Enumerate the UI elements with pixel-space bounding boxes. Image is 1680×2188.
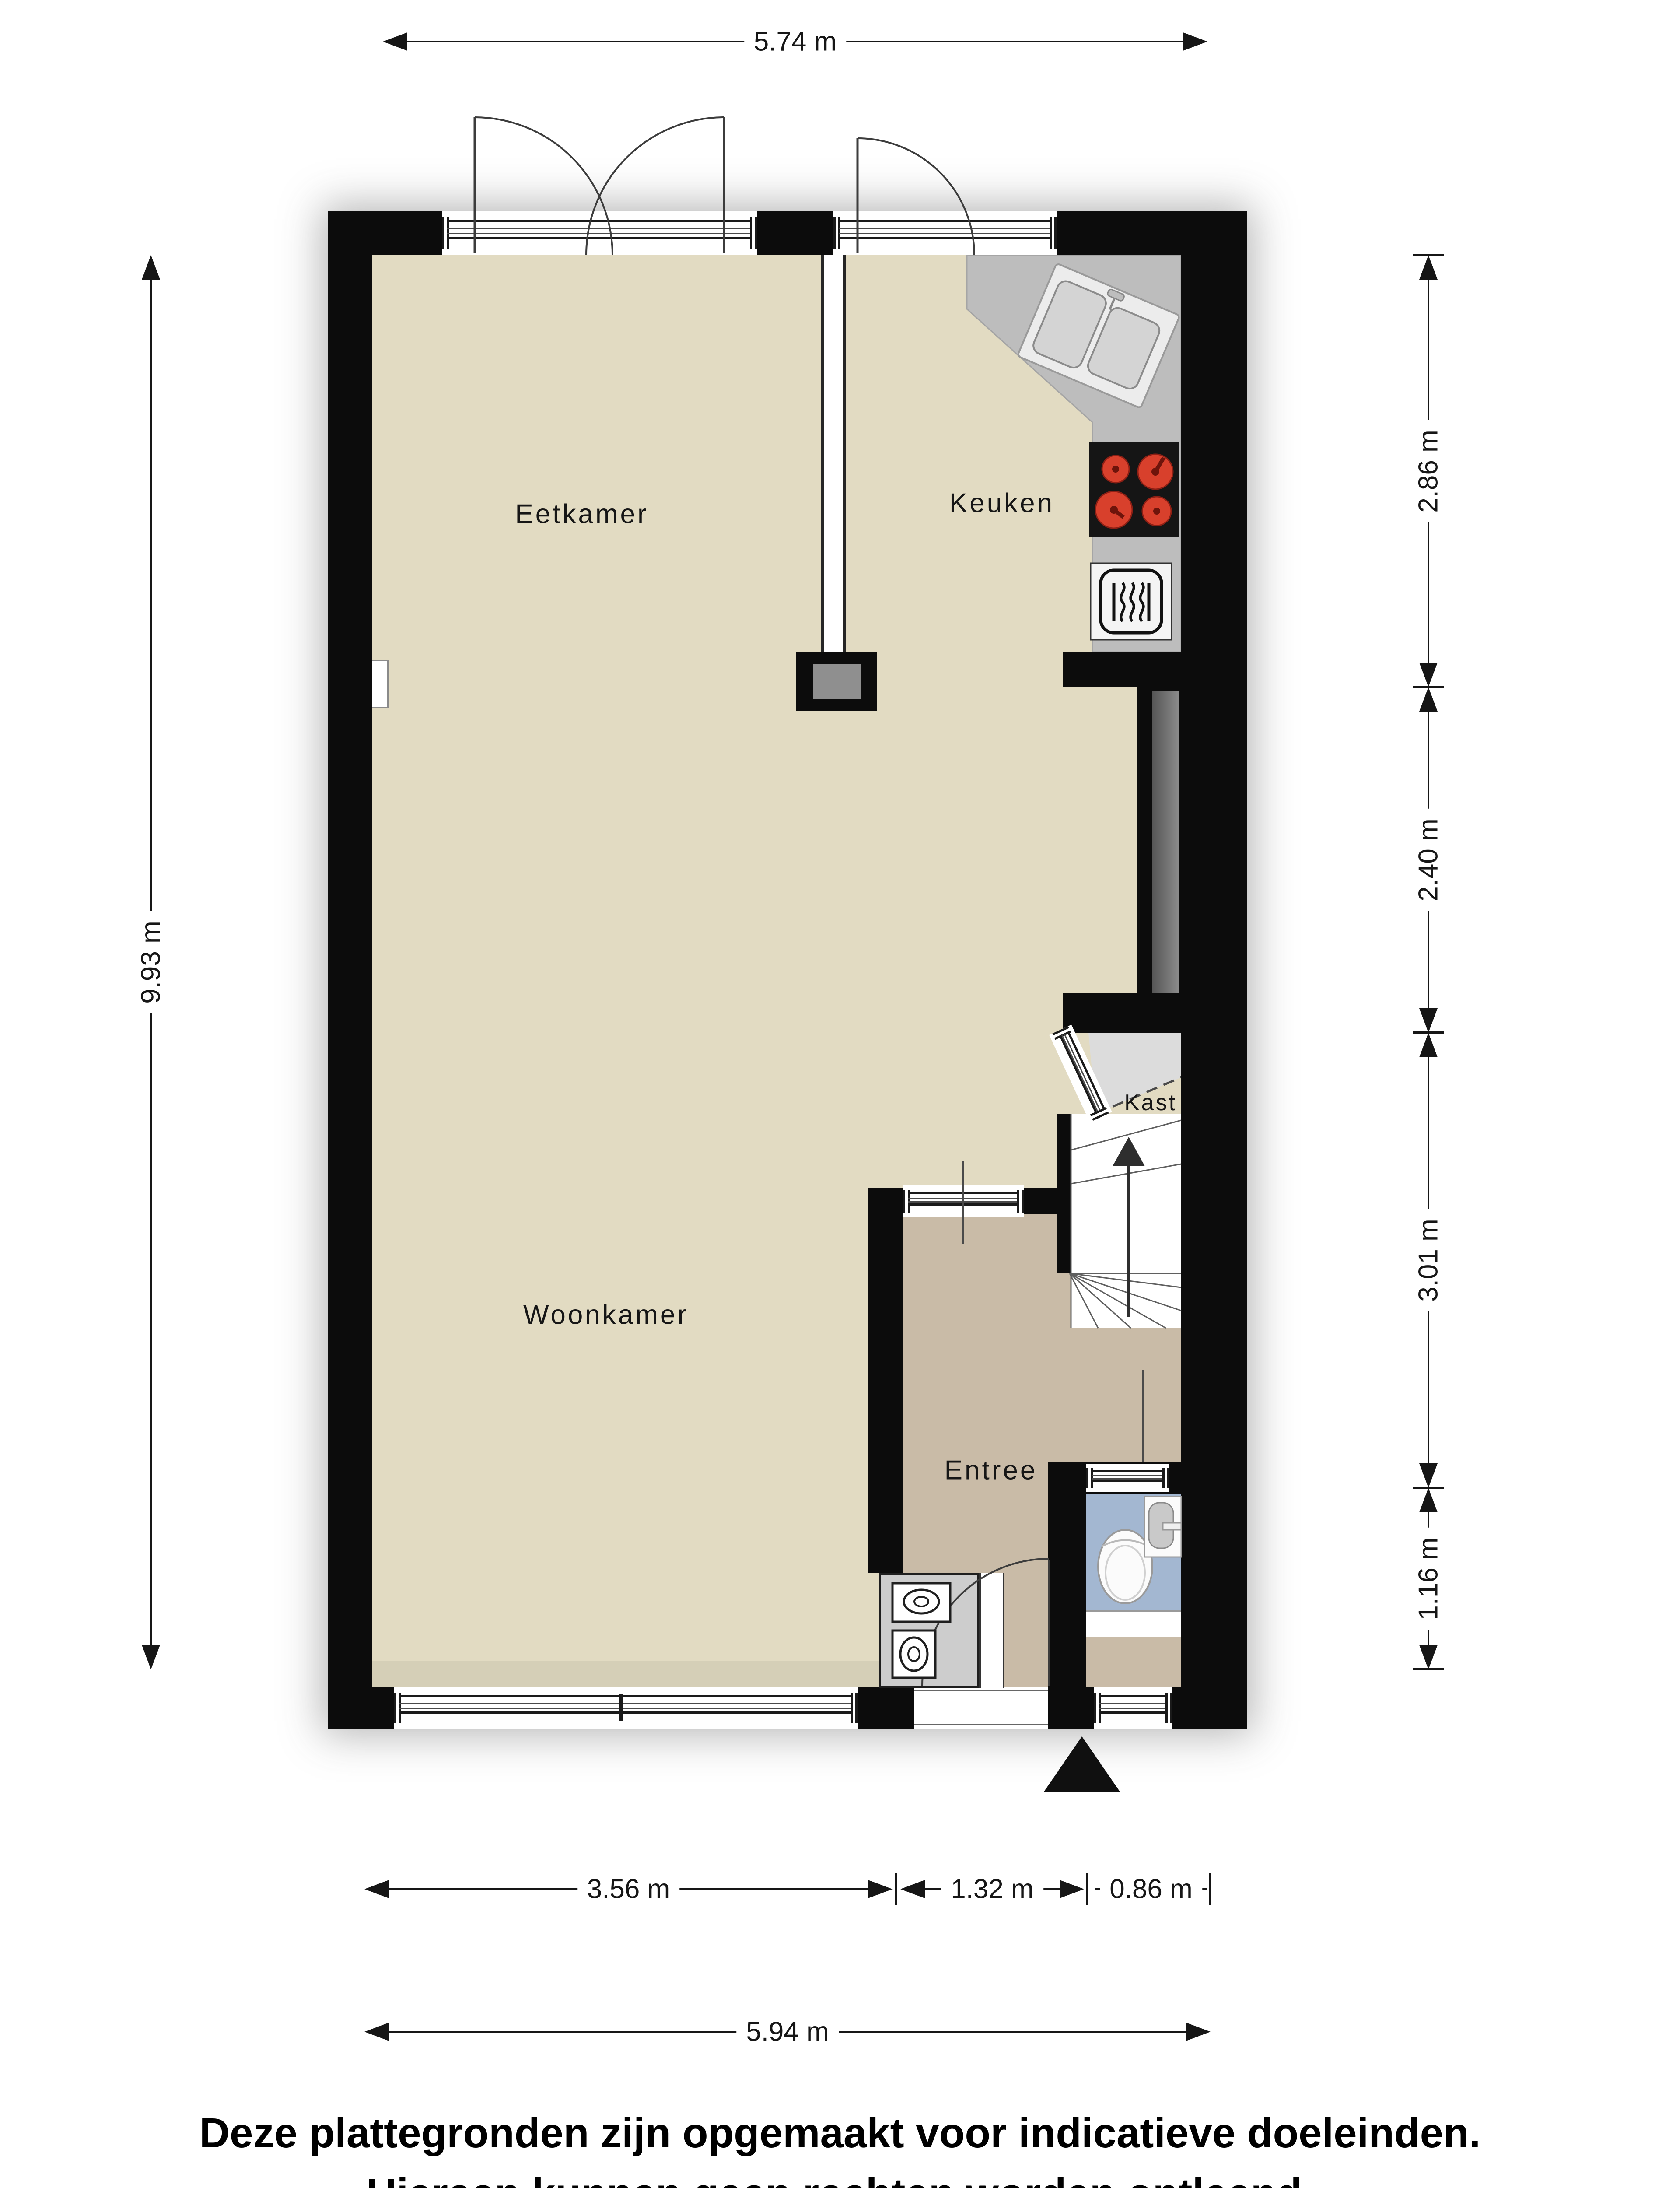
meter-cabinet-door — [979, 1573, 1004, 1688]
wall-kitchen-bottom — [1063, 652, 1247, 687]
dim-tick — [1086, 1873, 1088, 1905]
toilet-window-sill — [1086, 1610, 1181, 1637]
dimension-right-3: 3.01 m — [1411, 1033, 1446, 1488]
column-inset — [813, 664, 861, 699]
room-label-woonkamer: Woonkamer — [523, 1300, 689, 1331]
dim-tick — [1209, 1873, 1211, 1905]
wall-kast-top — [1063, 993, 1247, 1033]
dim-tick — [1413, 1668, 1444, 1670]
dimension-right-2: 2.40 m — [1411, 687, 1446, 1033]
toilet-window-leader-line — [1142, 1370, 1144, 1462]
wall-bottom-mid — [857, 1687, 914, 1729]
wall-bottom-left — [328, 1687, 394, 1729]
dimension-right-1: 2.86 m — [1411, 255, 1446, 687]
disclaimer-line-1: Deze plattegronden zijn opgemaakt voor i… — [0, 2109, 1680, 2157]
window-kitchen-door — [833, 211, 1057, 255]
entrance-arrow-icon — [1043, 1736, 1120, 1792]
floor-stairs — [1071, 1114, 1181, 1328]
room-label-kast: Kast — [1124, 1090, 1177, 1116]
flue-duct — [1152, 691, 1179, 993]
floorplan-page: Eetkamer Keuken Woonkamer Kast Entree 5.… — [0, 0, 1680, 2188]
entrance-door-opening — [914, 1690, 1048, 1725]
dimension-bottom-3: 0.86 m — [1092, 1872, 1211, 1907]
dim-tick — [1413, 254, 1444, 256]
room-label-entree: Entree — [945, 1455, 1038, 1486]
wall-left — [328, 211, 372, 1729]
wall-entree-left — [868, 1214, 903, 1573]
wall-partition-dining-kitchen — [821, 255, 846, 652]
wall-bottom-toilet-left — [1048, 1687, 1094, 1729]
dimension-bottom-1: 3.56 m — [364, 1872, 892, 1907]
dimension-left-height: 9.93 m — [133, 255, 168, 1669]
dimension-top-width: 5.74 m — [383, 24, 1207, 59]
left-wall-niche — [372, 660, 388, 708]
window-french-doors — [442, 211, 757, 255]
window-living-room — [394, 1687, 857, 1729]
wall-entree-top-right-post — [1024, 1188, 1057, 1214]
wall-stairs-left-stub — [1057, 1114, 1071, 1273]
room-label-eetkamer: Eetkamer — [515, 499, 648, 530]
dim-tick — [1413, 686, 1444, 688]
window-center-line — [962, 1161, 964, 1244]
floor-toilet — [1086, 1494, 1181, 1610]
wall-toilet-left — [1048, 1462, 1086, 1687]
disclaimer-line-2: Hieraan kunnen geen rechten worden ontle… — [0, 2170, 1680, 2188]
dimension-right-4: 1.16 m — [1411, 1488, 1446, 1669]
room-label-keuken: Keuken — [949, 488, 1054, 519]
window-toilet-bottom — [1094, 1687, 1172, 1729]
dimension-bottom-2: 1.32 m — [900, 1872, 1084, 1907]
dimension-bottom-total: 5.94 m — [364, 2014, 1211, 2049]
window-toilet-top — [1086, 1464, 1169, 1492]
wall-bottom-right — [1172, 1687, 1247, 1729]
dim-tick — [1413, 1031, 1444, 1034]
meter-cabinet-panel — [879, 1573, 979, 1688]
wall-entree-top-left-post — [868, 1188, 903, 1214]
dim-tick — [1413, 1487, 1444, 1489]
wall-top-pier — [757, 211, 833, 255]
dim-tick — [895, 1873, 897, 1905]
wall-right — [1181, 211, 1247, 1729]
